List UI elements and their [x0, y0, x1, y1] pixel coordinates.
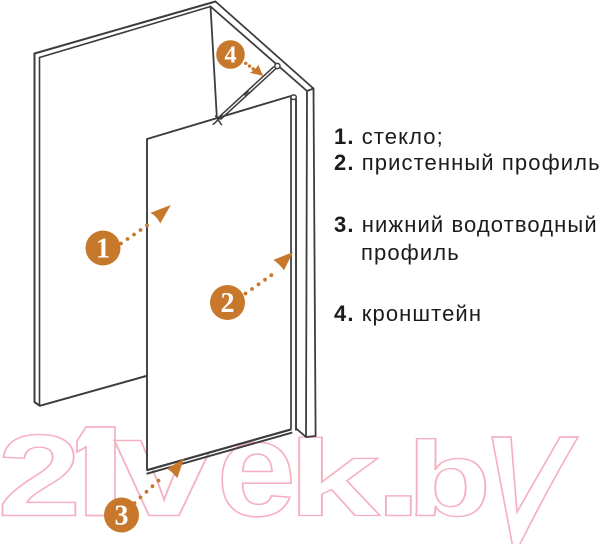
svg-text:b: b — [407, 420, 491, 538]
svg-text:4: 4 — [225, 43, 237, 69]
svg-text:2: 2 — [221, 288, 235, 319]
svg-text:2: 2 — [0, 410, 81, 540]
svg-text:1: 1 — [96, 234, 110, 265]
svg-text:3: 3 — [115, 501, 129, 532]
svg-text:k: k — [288, 417, 380, 538]
